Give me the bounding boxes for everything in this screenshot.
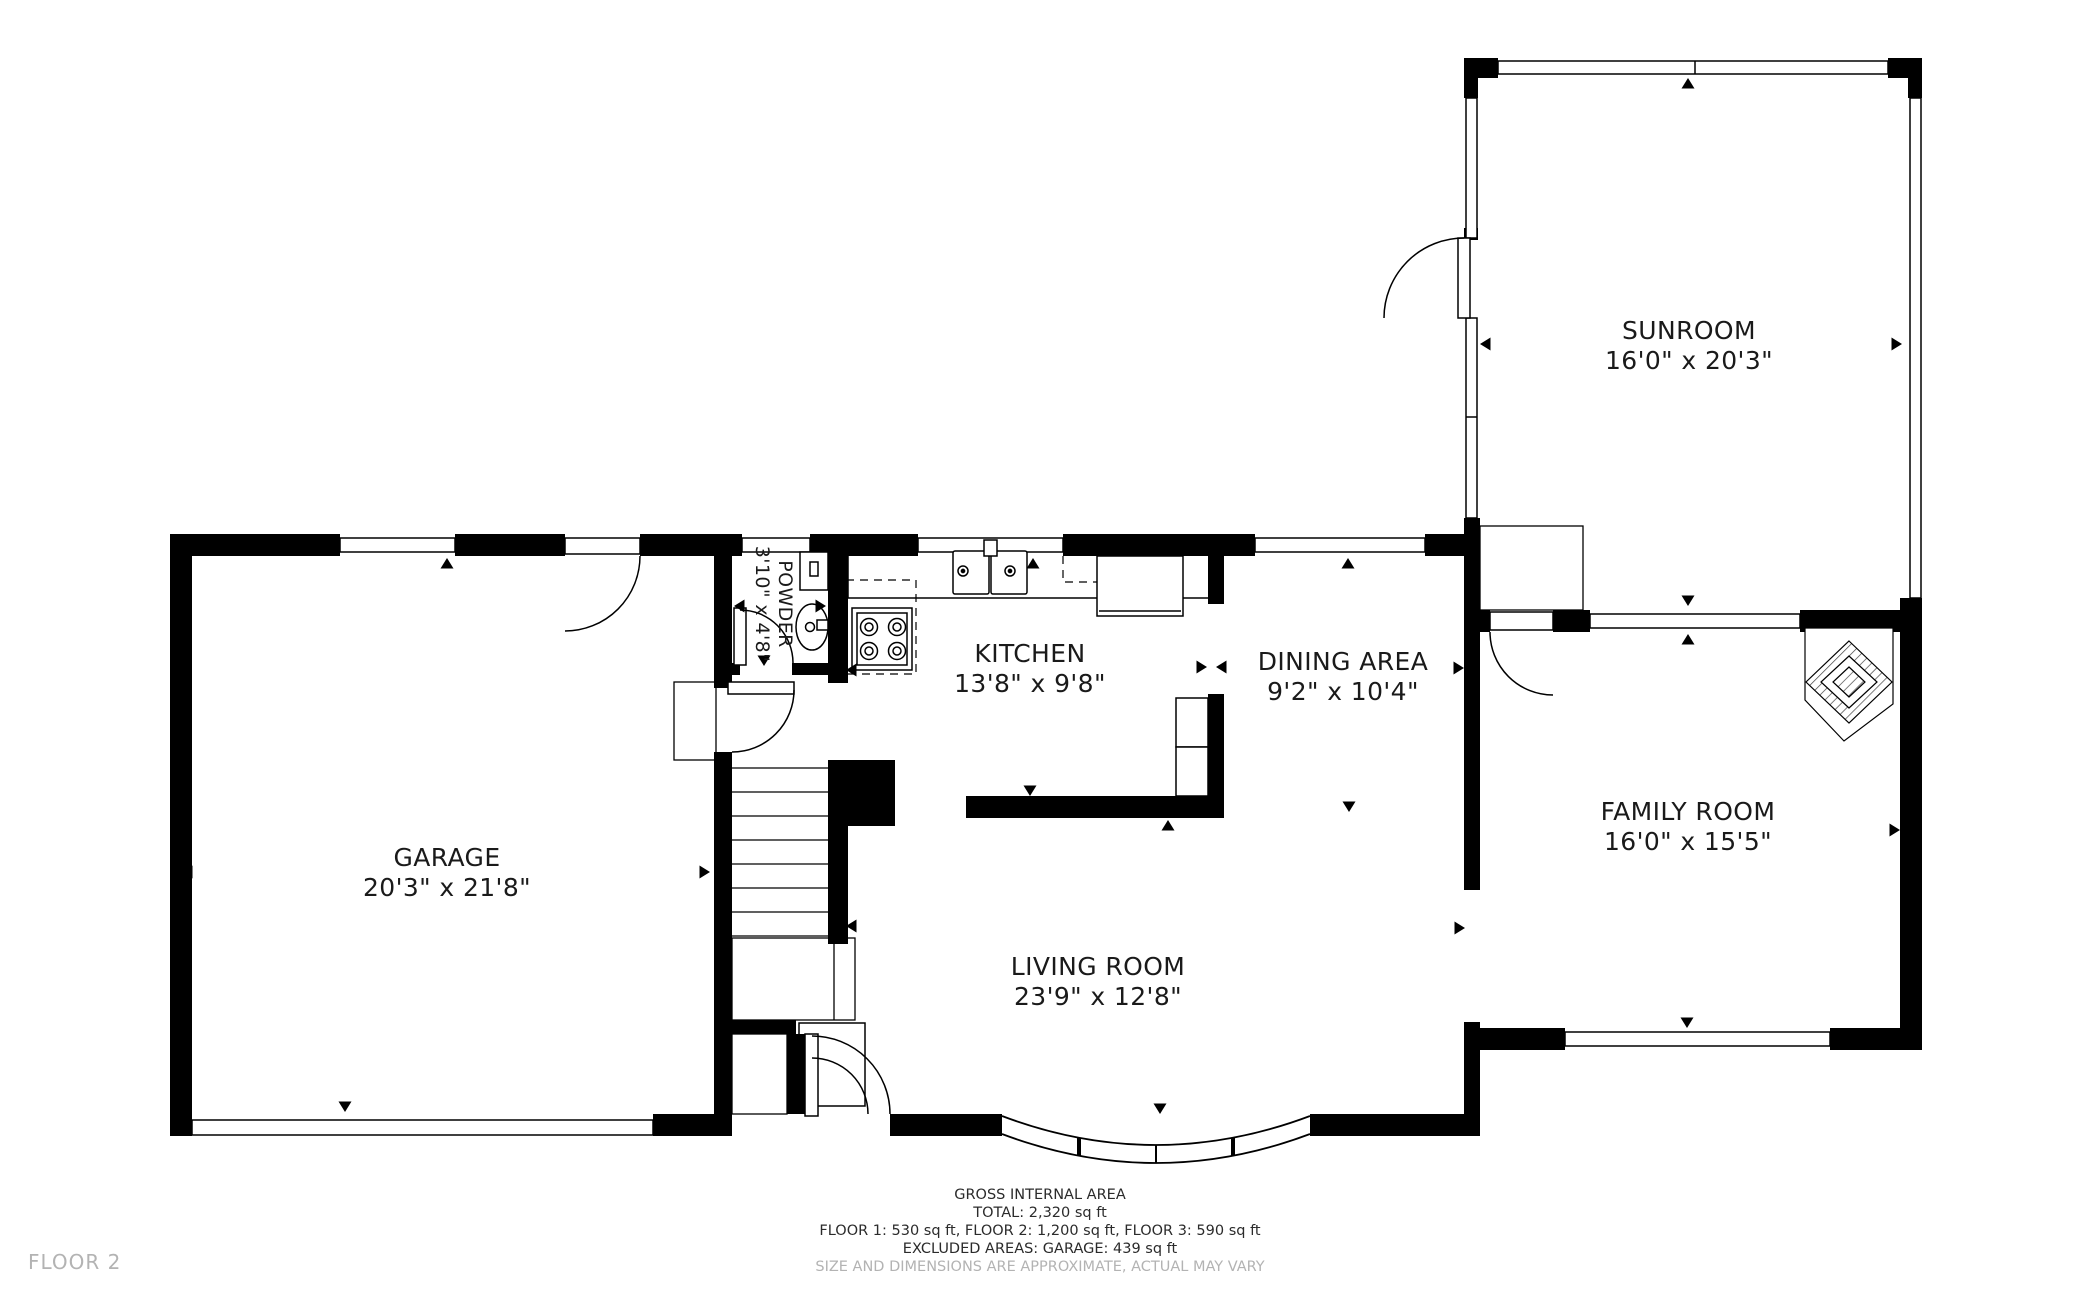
dining-window [1255, 538, 1425, 552]
family-door-leaf [1490, 612, 1553, 630]
footer-disclaimer: SIZE AND DIMENSIONS ARE APPROXIMATE, ACT… [815, 1258, 1264, 1276]
entry-door-arc-outer [812, 1036, 890, 1114]
room-name: GARAGE [363, 843, 531, 873]
area-summary: GROSS INTERNAL AREA TOTAL: 2,320 sq ft F… [815, 1186, 1264, 1276]
family-bottom-window [1565, 1032, 1830, 1046]
room-name: DINING AREA [1258, 647, 1429, 677]
sunroom-landing [1480, 526, 1583, 610]
garage-back-door-arc [565, 556, 640, 631]
family-top-window [1590, 614, 1800, 628]
room-name: POWDER [773, 546, 796, 663]
room-label-kitchen: KITCHEN 13'8" x 9'8" [954, 639, 1106, 699]
fireplace-icon [1805, 628, 1893, 741]
room-name: KITCHEN [954, 639, 1106, 669]
sunroom-left-window-lower [1466, 318, 1477, 518]
floor-label: FLOOR 2 [28, 1250, 121, 1274]
floor-plan-page: SUNROOM 16'0" x 20'3" GARAGE 20'3" x 21'… [0, 0, 2080, 1299]
stair-landing [732, 938, 855, 1020]
room-dims: 23'9" x 12'8" [1011, 982, 1186, 1012]
stove-icon [852, 608, 912, 670]
garage-door-icon [192, 1120, 653, 1135]
sunroom-right-window [1910, 98, 1921, 598]
sunroom-left-window-upper [1466, 98, 1477, 238]
garage-side-door-arc [732, 690, 794, 752]
garage-side-door-leaf [728, 682, 794, 694]
garage-step [674, 682, 716, 760]
footer-title: GROSS INTERNAL AREA [815, 1186, 1264, 1204]
room-label-family: FAMILY ROOM 16'0" x 15'5" [1601, 797, 1776, 857]
powder-fixtures [796, 552, 828, 650]
room-label-sunroom: SUNROOM 16'0" x 20'3" [1605, 316, 1773, 376]
garage-back-door-leaf [565, 538, 640, 554]
room-label-living: LIVING ROOM 23'9" x 12'8" [1011, 952, 1186, 1012]
garage-window [340, 538, 455, 552]
room-label-dining: DINING AREA 9'2" x 10'4" [1258, 647, 1429, 707]
footer-excluded: EXCLUDED AREAS: GARAGE: 439 sq ft [815, 1240, 1264, 1258]
stairs-icon [674, 682, 855, 1114]
footer-total: TOTAL: 2,320 sq ft [815, 1204, 1264, 1222]
bay-window-icon [1002, 1116, 1310, 1163]
room-name: LIVING ROOM [1011, 952, 1186, 982]
room-dims: 20'3" x 21'8" [363, 873, 531, 903]
room-dims: 16'0" x 20'3" [1605, 346, 1773, 376]
peninsula-counter-1 [1176, 698, 1208, 747]
room-dims: 9'2" x 10'4" [1258, 677, 1429, 707]
room-label-powder: POWDER 3'10" x 4'8" [750, 546, 796, 663]
sunroom-door-arc [1384, 238, 1464, 318]
room-label-garage: GARAGE 20'3" x 21'8" [363, 843, 531, 903]
room-dims: 3'10" x 4'8" [750, 546, 773, 663]
refrigerator-icon [1097, 556, 1183, 616]
toilet-icon [800, 552, 828, 590]
family-door-arc [1490, 632, 1553, 695]
washbasin-icon [796, 604, 828, 650]
sunroom-top-window [1498, 61, 1888, 74]
powder-door-leaf [734, 608, 746, 665]
room-dims: 13'8" x 9'8" [954, 669, 1106, 699]
footer-floors: FLOOR 1: 530 sq ft, FLOOR 2: 1,200 sq ft… [815, 1222, 1264, 1240]
room-dims: 16'0" x 15'5" [1601, 827, 1776, 857]
sunroom-door-leaf [1458, 238, 1470, 318]
room-name: FAMILY ROOM [1601, 797, 1776, 827]
entry-closet [732, 1034, 787, 1114]
entry-door-leaf [805, 1034, 818, 1116]
room-name: SUNROOM [1605, 316, 1773, 346]
peninsula-counter-2 [1176, 747, 1208, 796]
